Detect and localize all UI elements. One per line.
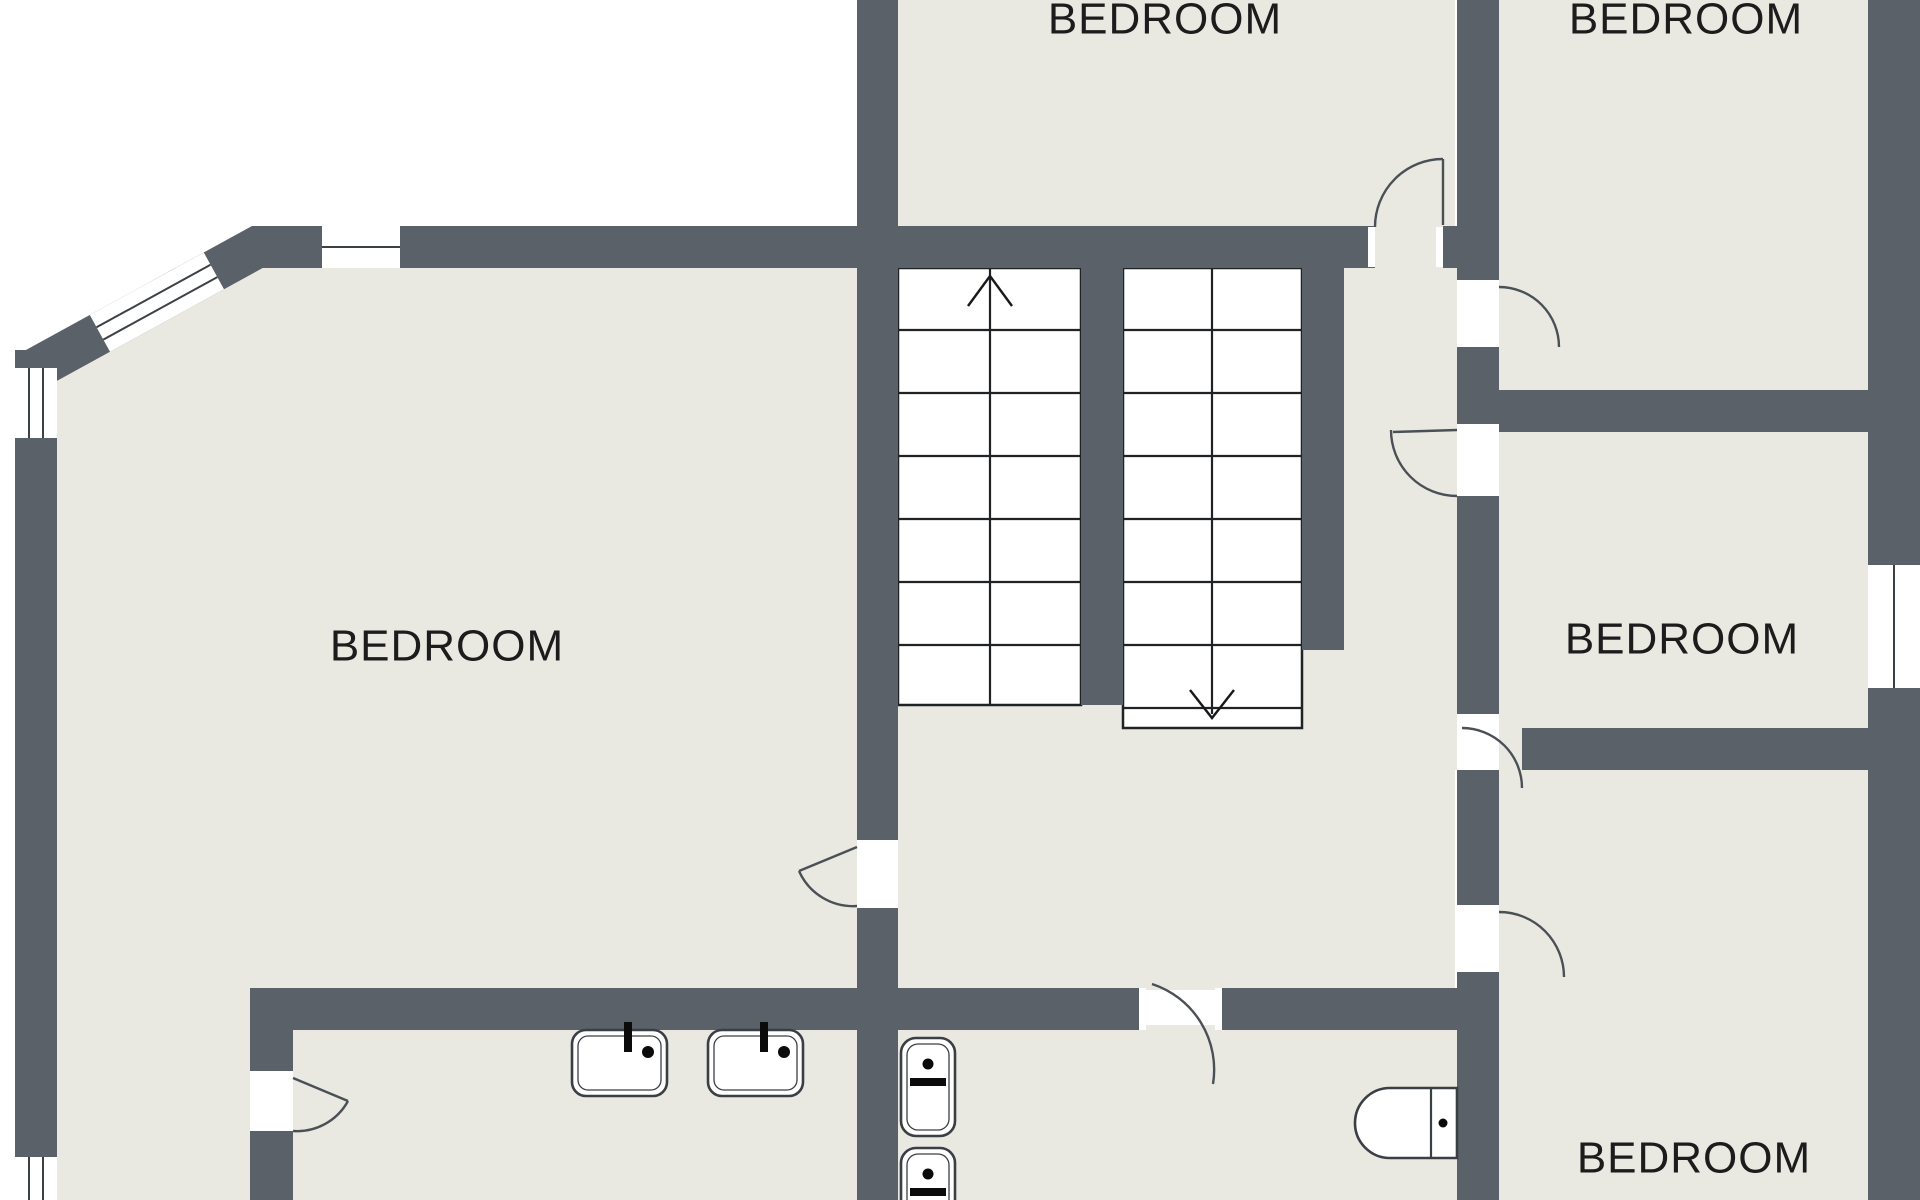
toilet-2-icon bbox=[901, 1148, 955, 1200]
wall-central-vertical-lower bbox=[857, 908, 898, 1200]
wall-hall-east-2 bbox=[1457, 347, 1499, 424]
label-bedroom-bottom-right: BEDROOM bbox=[1577, 1134, 1811, 1183]
wall-right-divider-1 bbox=[1499, 390, 1868, 432]
floor-right-rooms bbox=[1499, 0, 1868, 1200]
wall-bath-north-1 bbox=[250, 988, 1145, 1030]
label-bedroom-top-middle: BEDROOM bbox=[1048, 0, 1282, 44]
window-west-lower bbox=[15, 1157, 57, 1200]
floor-plan-canvas: BEDROOM BEDROOM BEDROOM BEDROOM BEDROOM bbox=[0, 0, 1920, 1200]
wall-central-vertical-upper bbox=[857, 0, 898, 840]
wall-hall-east-4 bbox=[1457, 770, 1499, 905]
label-bedroom-top-right: BEDROOM bbox=[1569, 0, 1803, 44]
wall-hall-east-1 bbox=[1457, 0, 1499, 280]
label-bedroom-left: BEDROOM bbox=[330, 622, 564, 671]
wall-stairwell-east bbox=[1302, 268, 1344, 650]
label-bedroom-middle-right: BEDROOM bbox=[1565, 615, 1799, 664]
toilet-1-icon bbox=[901, 1038, 955, 1136]
wall-hall-east-5 bbox=[1457, 972, 1499, 1200]
floor-bedroom-left-extension bbox=[52, 988, 250, 1200]
wall-east-lower bbox=[1868, 688, 1920, 1200]
wall-east-upper bbox=[1868, 0, 1920, 565]
wall-stair-divider bbox=[1081, 268, 1123, 705]
toilet-3-icon bbox=[1355, 1088, 1457, 1158]
window-north bbox=[322, 226, 400, 268]
wall-hall-east-3 bbox=[1457, 496, 1499, 714]
window-west-upper bbox=[15, 368, 57, 438]
wall-right-divider-2 bbox=[1522, 728, 1868, 770]
window-east bbox=[1868, 565, 1920, 688]
wall-bath-north-2 bbox=[1215, 988, 1457, 1030]
sink-1-icon bbox=[572, 1022, 667, 1096]
wall-bath-west-2 bbox=[250, 1131, 293, 1200]
wall-west bbox=[15, 350, 57, 1200]
wall-bath-west-1 bbox=[250, 988, 293, 1072]
sink-2-icon bbox=[708, 1022, 803, 1096]
floor-plan: BEDROOM BEDROOM BEDROOM BEDROOM BEDROOM bbox=[0, 0, 1920, 1200]
